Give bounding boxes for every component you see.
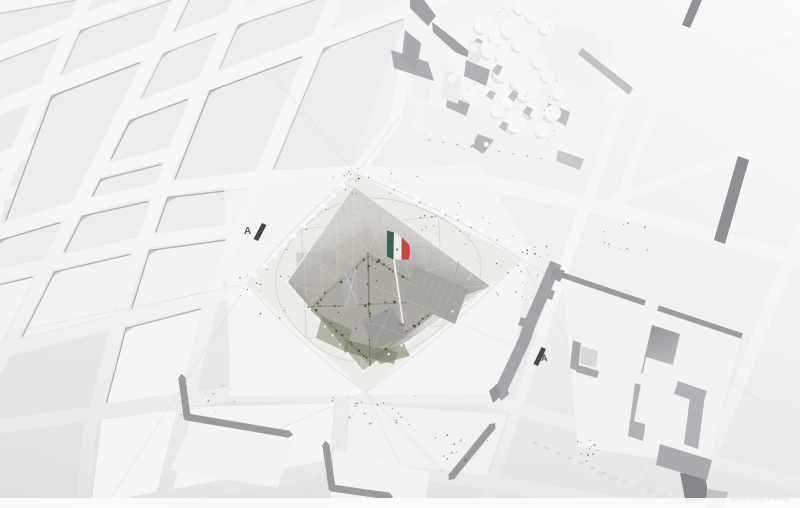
svg-text:A: A: [244, 226, 251, 237]
svg-text:A: A: [541, 353, 548, 363]
svg-text:zocalo mexico df studio: zocalo mexico df studio: [730, 497, 789, 503]
